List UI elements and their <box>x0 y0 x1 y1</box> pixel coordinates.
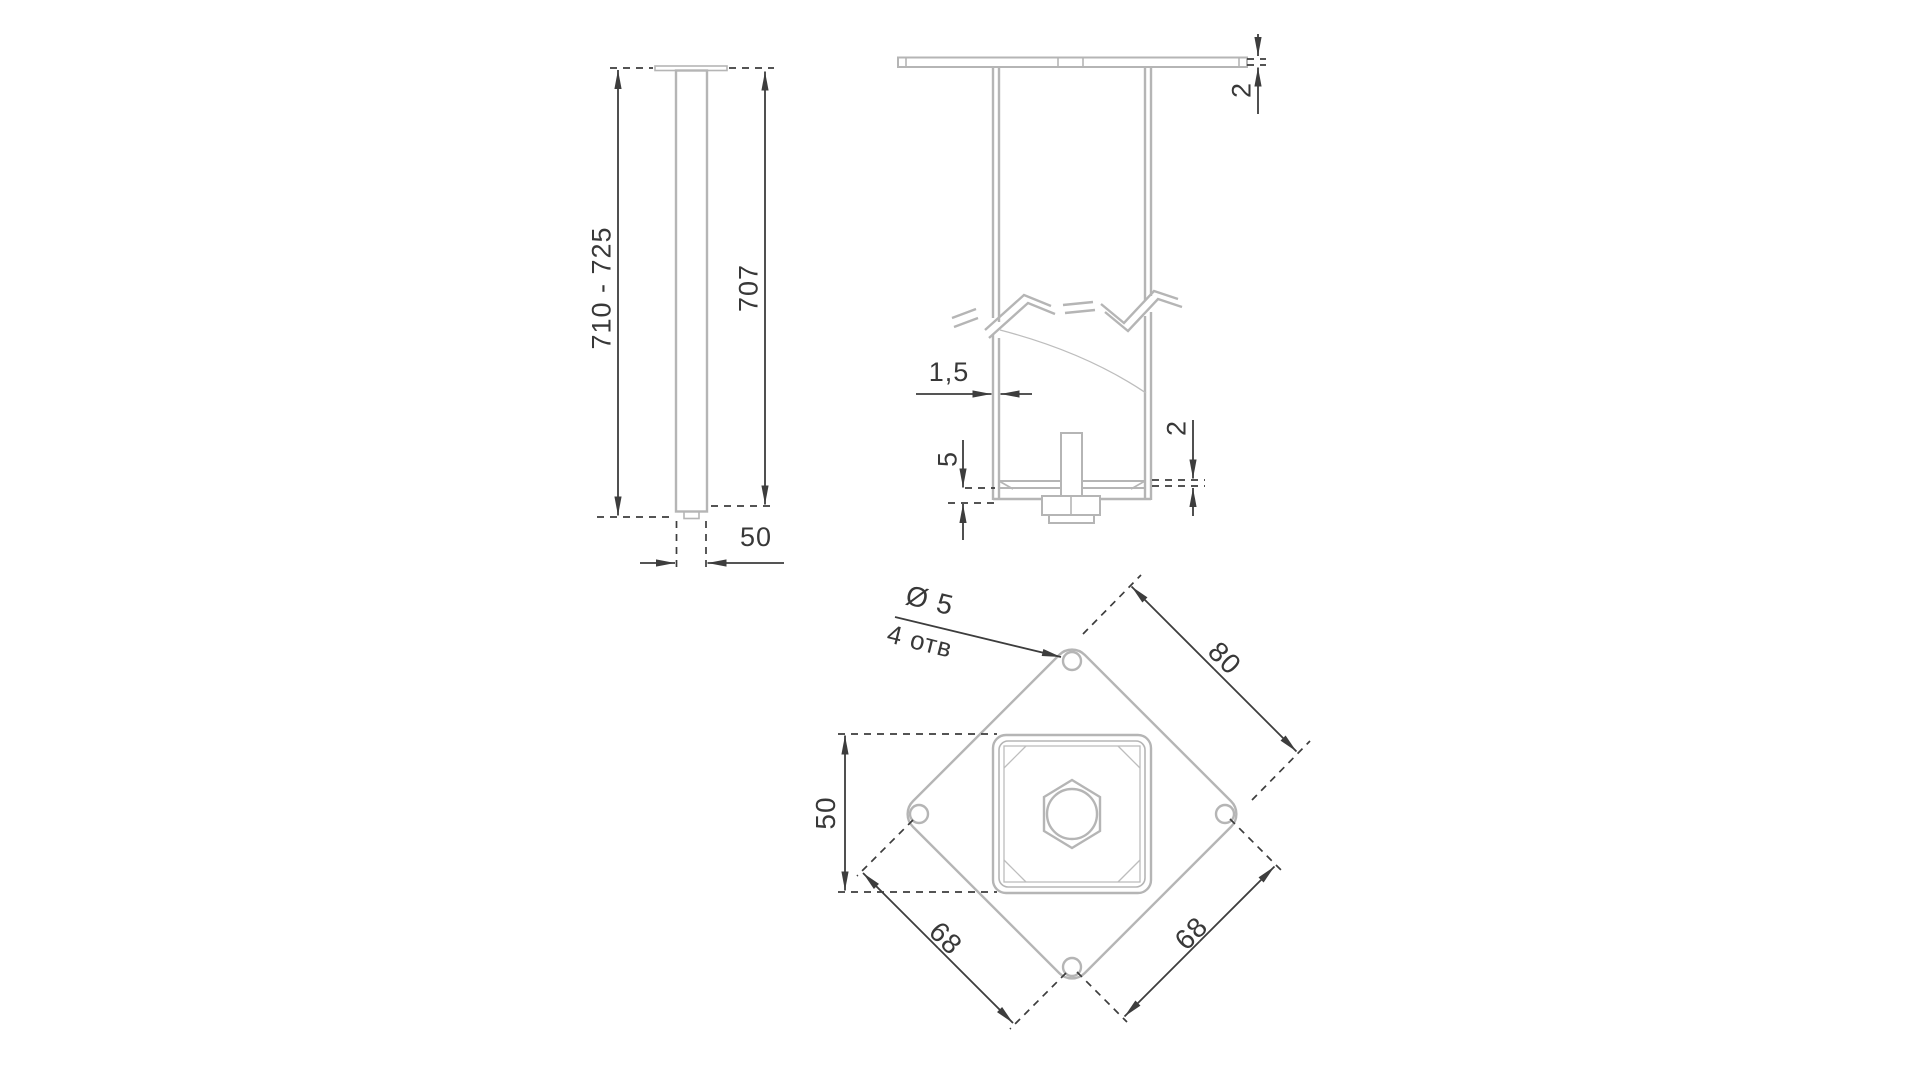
dim-top-plate-thickness: 2 <box>1226 34 1266 114</box>
dim-wall-thickness: 1,5 <box>916 357 1032 394</box>
internal-plate-chamfers <box>1004 746 1140 882</box>
dim-foot-plate-gap-label: 5 <box>932 451 962 467</box>
dim-tube-width: 50 <box>640 522 784 563</box>
dim-internal-plate-thickness: 2 <box>1152 420 1205 516</box>
side-leg-tube <box>676 71 707 512</box>
dim-wall-thickness-label: 1,5 <box>929 357 970 387</box>
hole-diameter-label: Ø 5 <box>903 579 957 621</box>
ext-line <box>857 820 913 876</box>
dim-tube-length: 707 <box>733 72 765 505</box>
dim-hole-spacing-right-label: 68 <box>1169 911 1214 956</box>
dim-overall-height: 710 - 725 <box>586 70 618 516</box>
dim-tube-size-label: 50 <box>810 796 841 829</box>
thread-hole <box>1047 789 1097 839</box>
hole-count-label: 4 отв <box>884 619 956 664</box>
dim-tube-width-label: 50 <box>740 522 772 552</box>
nut-hexagon <box>1044 780 1100 848</box>
bottom-view: 50 80 68 68 Ø 5 <box>810 575 1310 1029</box>
dim-plate-edge-label: 80 <box>1202 636 1247 681</box>
adjuster-foot-plate <box>1049 515 1094 523</box>
ext-line <box>1010 973 1066 1029</box>
break-arc <box>1000 330 1146 393</box>
section-top-plate <box>898 58 1247 68</box>
dim-hole-spacing-left-label: 68 <box>923 916 968 961</box>
screw-hole-top <box>1063 652 1081 670</box>
tube-section-outer <box>993 735 1151 893</box>
ext-line <box>1230 819 1281 870</box>
dim-tube-size: 50 <box>810 734 997 892</box>
dim-hole-spacing-left: 68 <box>857 820 1066 1029</box>
technical-drawing: 710 - 725 707 50 <box>0 0 1920 1080</box>
section-view: 2 1,5 5 2 <box>898 34 1266 540</box>
dim-hole-spacing-right: 68 <box>1077 819 1281 1022</box>
drawing-canvas: 710 - 725 707 50 <box>0 0 1920 1080</box>
dim-overall-height-label: 710 - 725 <box>586 226 616 349</box>
hole-callout: Ø 5 4 отв <box>884 579 1061 663</box>
ext-line <box>1252 741 1310 800</box>
ext-line <box>1077 972 1127 1022</box>
dim-foot-plate-gap: 5 <box>932 440 995 540</box>
internal-plate-outline <box>1004 746 1140 882</box>
tube-section-inner <box>999 741 1145 887</box>
dim-top-plate-thickness-label: 2 <box>1226 82 1256 98</box>
dim-internal-plate-thickness-label: 2 <box>1161 420 1191 436</box>
ext-line <box>1083 575 1141 634</box>
adjuster-stud <box>1061 433 1082 497</box>
break-symbol <box>952 291 1182 338</box>
side-view: 710 - 725 707 50 <box>586 66 784 568</box>
dim-tube-length-label: 707 <box>733 264 763 312</box>
